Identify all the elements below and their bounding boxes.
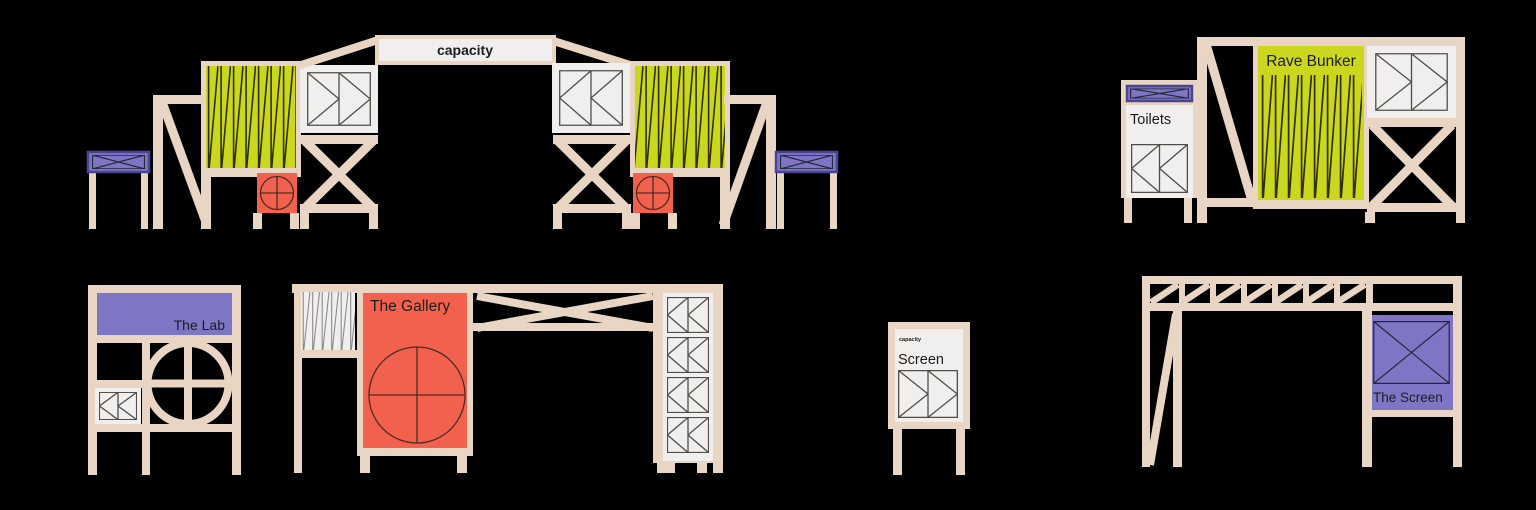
- lab-label: The Lab: [174, 317, 226, 333]
- rave-bunker-label: Rave Bunker: [1266, 53, 1356, 70]
- right-chevron-panel: [552, 63, 630, 133]
- circle-window: [148, 343, 229, 424]
- the-gallery-structure: The Gallery: [290, 283, 725, 475]
- zigzag-panel: [294, 292, 357, 358]
- left-cross-brace: [300, 135, 378, 229]
- entrance-arch-structure: capacity: [85, 30, 860, 232]
- capacity-banner: capacity: [375, 35, 556, 65]
- the-screen-label: The Screen: [1373, 390, 1443, 405]
- left-brace: [153, 95, 207, 229]
- rave-bunker-panel: Rave Bunker: [1253, 37, 1369, 209]
- zigzag-hatch: [1260, 75, 1362, 198]
- right-chevron-panel: [1367, 46, 1456, 118]
- screen-sign-brand: capacity: [899, 337, 922, 343]
- gallery-panel: The Gallery: [357, 288, 473, 473]
- left-chevron-panel: [300, 65, 378, 133]
- truss-beam: [1142, 276, 1462, 311]
- circle-cross-icon: [637, 177, 670, 210]
- zigzag-hatch: [635, 66, 725, 168]
- screen-sign-label: Screen: [898, 352, 944, 368]
- right-circle-panel: [631, 173, 677, 229]
- circle-cross-icon: [261, 177, 294, 210]
- chevron-stack-column: [653, 285, 723, 473]
- banner-strut-right: [547, 39, 633, 66]
- zigzag-hatch: [206, 66, 296, 168]
- zigzag-hatch: [301, 292, 355, 350]
- diagonal-brace: [1150, 314, 1176, 465]
- left-circle-panel: [253, 173, 299, 229]
- chevron-panel: [95, 388, 141, 424]
- banner-strut-left: [298, 39, 381, 66]
- top-cross-beam: [473, 296, 667, 473]
- the-screen-panel: The Screen: [1367, 315, 1455, 410]
- right-brace: [723, 95, 776, 229]
- capacity-banner-label: capacity: [437, 42, 493, 58]
- festival-structures-illustration: capacity: [0, 0, 1536, 510]
- left-table: [88, 152, 149, 229]
- the-lab-structure: The Lab: [86, 284, 244, 476]
- right-table: [776, 152, 837, 229]
- toilets-sign: Toilets: [1121, 80, 1198, 223]
- rave-bunker-structure: Toilets Rave Bunker: [1118, 35, 1468, 225]
- the-screen-structure: The Screen: [1140, 274, 1470, 470]
- screen-sign-structure: capacity Screen: [885, 320, 975, 477]
- circle-cross-icon: [369, 347, 465, 443]
- gallery-label: The Gallery: [370, 298, 450, 315]
- toilets-label: Toilets: [1130, 112, 1171, 128]
- right-cross-brace: [553, 135, 631, 229]
